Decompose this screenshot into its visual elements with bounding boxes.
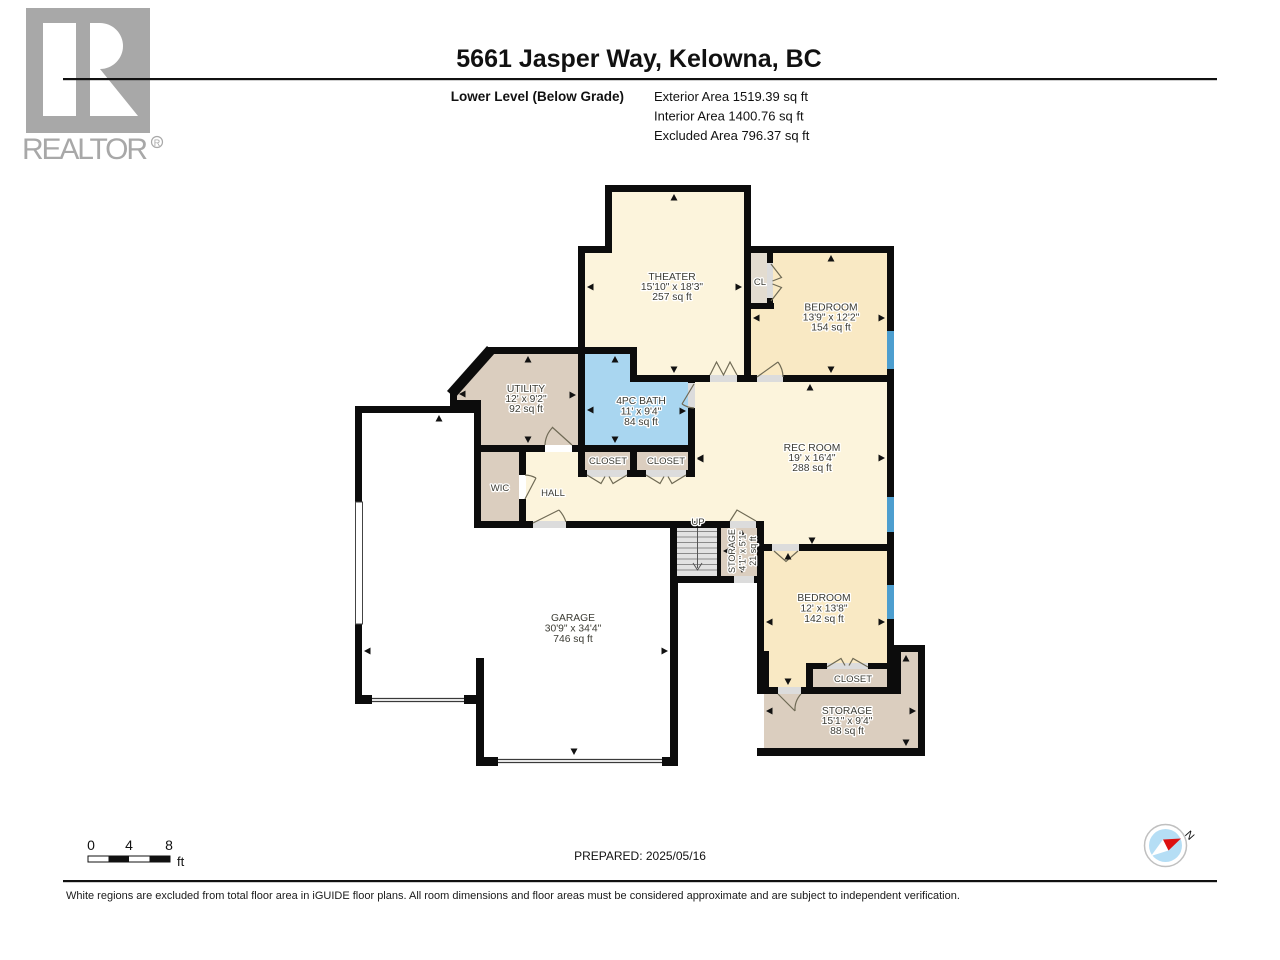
svg-text:R: R (154, 138, 161, 148)
svg-text:WIC: WIC (491, 483, 510, 494)
svg-text:257 sq ft: 257 sq ft (652, 292, 692, 303)
svg-text:CLOSET: CLOSET (589, 456, 627, 467)
svg-text:4PC BATH: 4PC BATH (616, 396, 666, 407)
svg-text:154 sq ft: 154 sq ft (811, 323, 851, 334)
svg-text:30'9" x 34'4": 30'9" x 34'4" (545, 624, 602, 635)
svg-text:GARAGE: GARAGE (551, 613, 595, 624)
svg-text:Excluded Area 796.37 sq ft: Excluded Area 796.37 sq ft (654, 128, 810, 143)
svg-text:92 sq ft: 92 sq ft (509, 404, 543, 415)
svg-text:12' x 13'8": 12' x 13'8" (800, 604, 847, 615)
svg-text:HALL: HALL (541, 488, 565, 499)
svg-text:PREPARED: 2025/05/16: PREPARED: 2025/05/16 (574, 849, 706, 863)
svg-text:REALTOR: REALTOR (22, 133, 150, 166)
svg-text:11' x 9'4": 11' x 9'4" (621, 407, 662, 418)
svg-text:White regions are excluded fro: White regions are excluded from total fl… (66, 890, 960, 902)
svg-text:21 sq ft: 21 sq ft (748, 536, 758, 566)
svg-text:Interior Area 1400.76 sq ft: Interior Area 1400.76 sq ft (654, 109, 804, 124)
svg-text:4: 4 (125, 837, 133, 853)
svg-text:746 sq ft: 746 sq ft (553, 634, 593, 645)
svg-text:Lower Level (Below Grade): Lower Level (Below Grade) (451, 89, 624, 104)
svg-text:CL: CL (754, 277, 766, 288)
svg-text:142 sq ft: 142 sq ft (804, 614, 844, 625)
svg-text:288 sq ft: 288 sq ft (792, 463, 832, 474)
svg-text:88 sq ft: 88 sq ft (830, 726, 864, 737)
svg-text:8: 8 (165, 837, 173, 853)
svg-text:5661 Jasper Way, Kelowna, BC: 5661 Jasper Way, Kelowna, BC (456, 45, 821, 73)
svg-text:4'1" x 5'1": 4'1" x 5'1" (738, 531, 748, 570)
svg-text:84 sq ft: 84 sq ft (624, 417, 658, 428)
svg-text:CLOSET: CLOSET (834, 674, 872, 685)
svg-text:Exterior Area 1519.39 sq ft: Exterior Area 1519.39 sq ft (654, 89, 808, 104)
svg-text:UP: UP (691, 517, 704, 528)
svg-text:ft: ft (177, 854, 185, 869)
svg-text:STORAGE: STORAGE (727, 529, 737, 573)
svg-text:BEDROOM: BEDROOM (797, 593, 850, 604)
svg-text:CLOSET: CLOSET (647, 456, 685, 467)
svg-text:0: 0 (87, 837, 95, 853)
